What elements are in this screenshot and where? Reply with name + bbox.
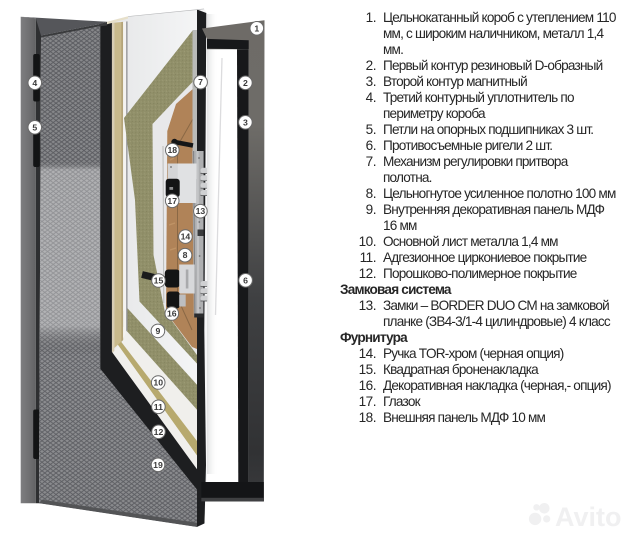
svg-text:13: 13: [196, 206, 206, 216]
svg-text:10: 10: [153, 378, 163, 388]
svg-text:16: 16: [167, 309, 177, 319]
svg-text:17: 17: [167, 196, 177, 206]
svg-text:8: 8: [183, 250, 188, 260]
svg-text:4: 4: [32, 78, 37, 88]
svg-text:12: 12: [154, 427, 164, 437]
svg-text:19: 19: [153, 460, 163, 470]
svg-text:15: 15: [154, 276, 164, 286]
svg-text:7: 7: [198, 77, 203, 87]
svg-text:14: 14: [181, 232, 191, 242]
svg-text:3: 3: [243, 117, 248, 127]
svg-text:9: 9: [155, 326, 160, 336]
svg-text:18: 18: [167, 145, 177, 155]
svg-text:5: 5: [32, 122, 37, 132]
svg-text:Avito: Avito: [555, 502, 622, 532]
svg-text:1: 1: [254, 23, 259, 33]
svg-text:11: 11: [154, 402, 163, 412]
svg-text:2: 2: [243, 78, 248, 88]
svg-text:6: 6: [243, 275, 248, 285]
